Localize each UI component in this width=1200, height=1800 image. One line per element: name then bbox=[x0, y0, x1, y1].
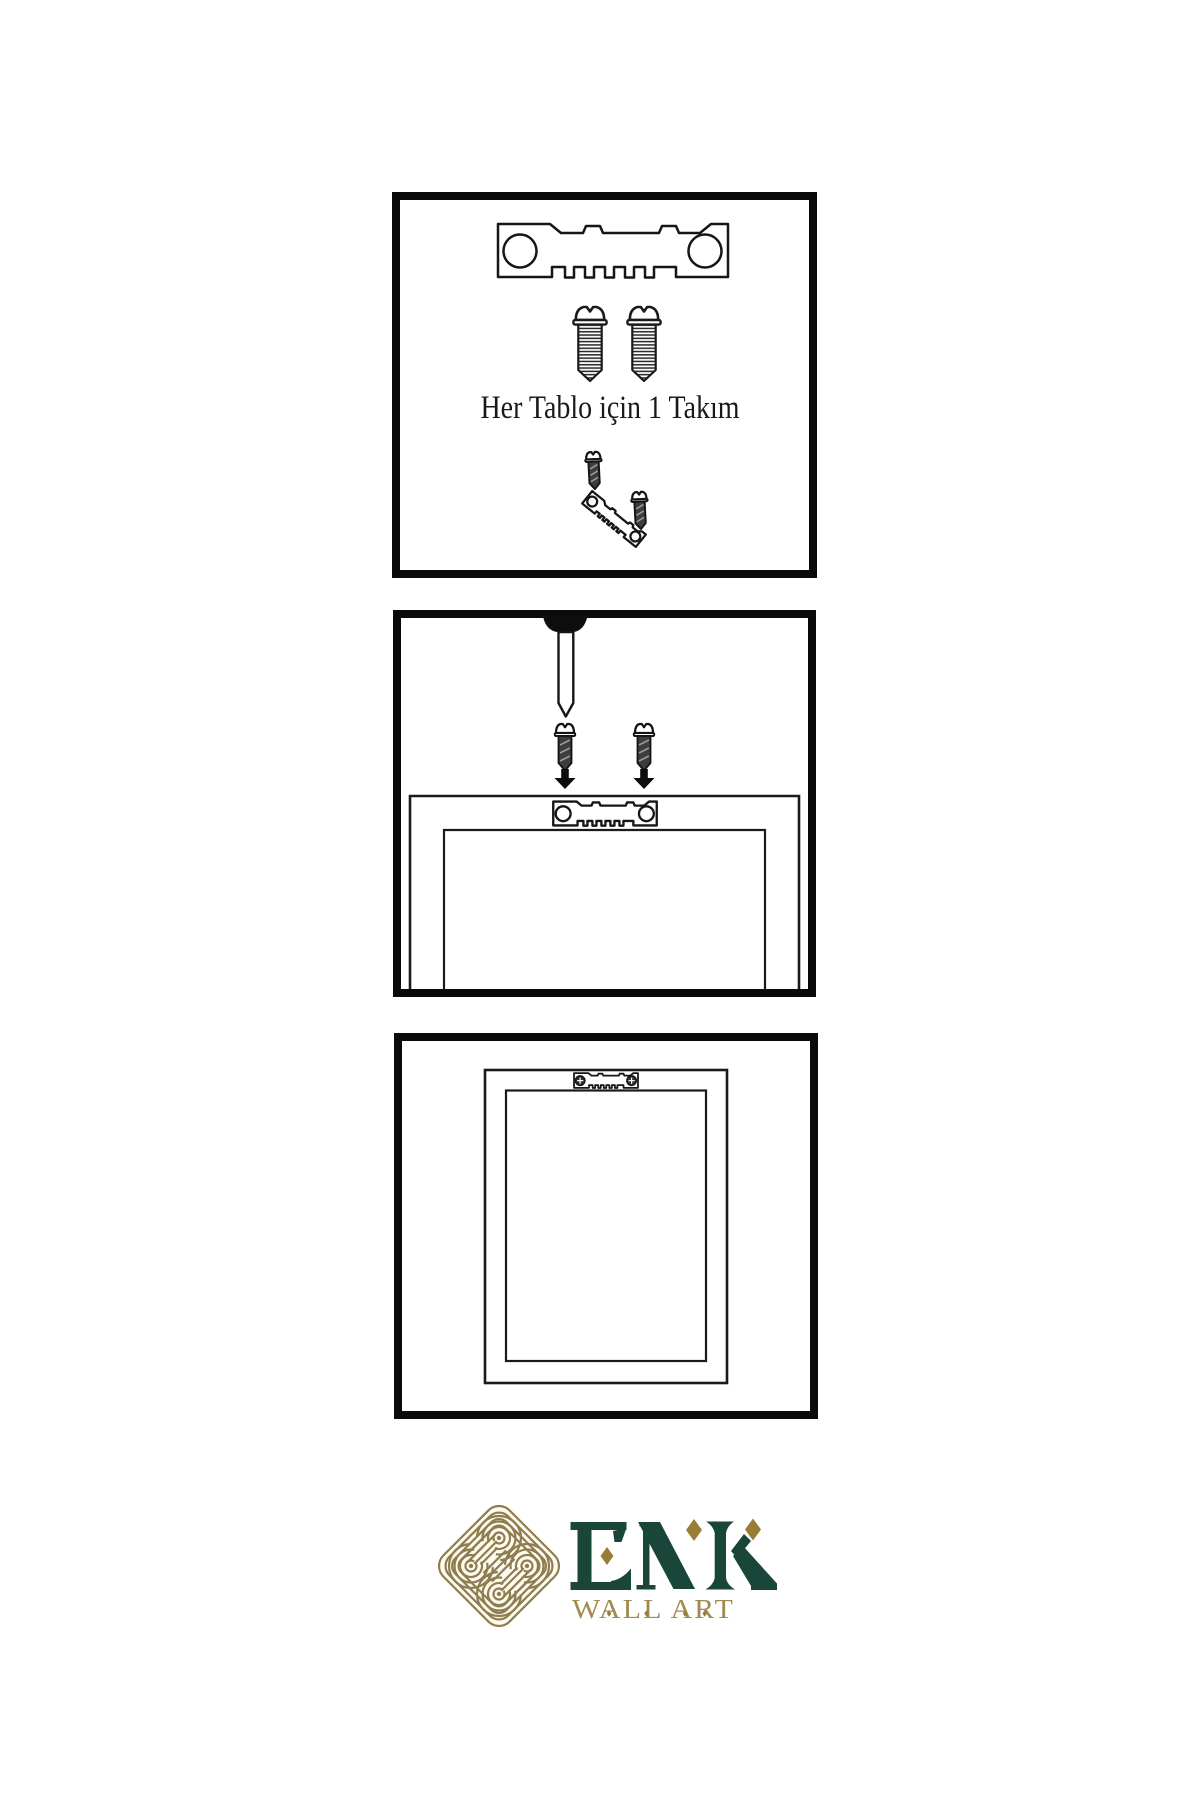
svg-text:Her Tablo için 1 Takım: Her Tablo için 1 Takım bbox=[481, 390, 740, 426]
svg-text:WALL ART: WALL ART bbox=[572, 1594, 735, 1624]
